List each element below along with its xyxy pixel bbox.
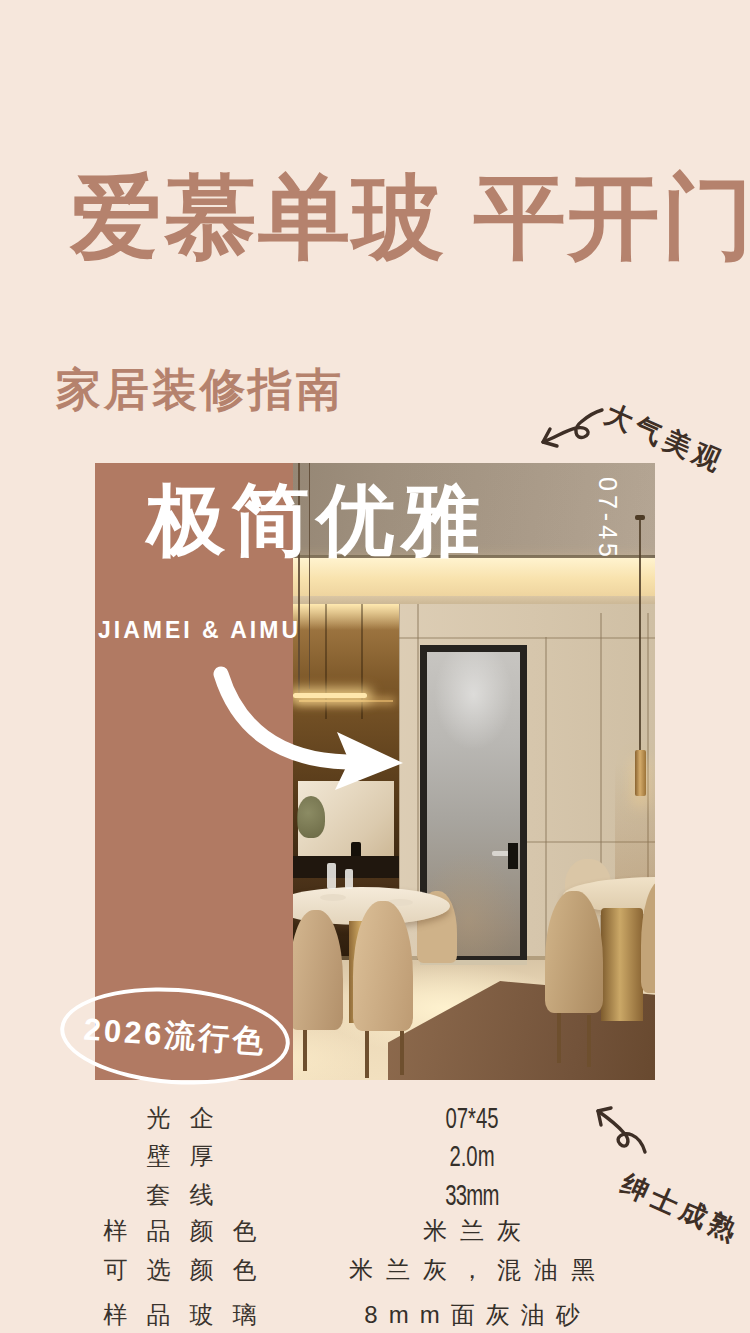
chair-leg <box>557 1011 561 1063</box>
curly-arrow-up-left-icon <box>588 1098 650 1160</box>
brand-name: JIAMEI & AIMU <box>98 617 301 644</box>
trend-color-badge-label: 2026流行色 <box>82 1009 267 1064</box>
table-pedestal <box>601 908 643 1021</box>
curly-arrow-down-left-icon <box>534 400 606 458</box>
page-title: 爱慕单玻 平开门 <box>70 156 750 280</box>
dining-chair <box>289 910 343 1030</box>
dining-chair <box>353 901 413 1031</box>
poster-page: { "colors": { "background": "#f6e7dc", "… <box>0 0 750 1333</box>
spec-row: 样品玻璃 8mm面灰油砂 <box>0 1300 750 1330</box>
wall-seam <box>545 637 547 960</box>
glassware <box>345 869 353 889</box>
spec-value: 2.0m <box>346 1141 598 1171</box>
curved-arrow-right-icon <box>207 666 407 794</box>
spec-label: 壁厚 <box>55 1141 305 1171</box>
spec-row: 可选颜色 米兰灰，混油黑 <box>0 1255 750 1285</box>
plant <box>297 796 325 838</box>
plate <box>320 894 346 901</box>
spec-value: 33mm <box>346 1180 598 1210</box>
page-subtitle: 家居装修指南 <box>56 360 344 420</box>
spec-label: 可选颜色 <box>55 1255 305 1285</box>
card-headline: 极简优雅 <box>147 469 487 574</box>
dining-chair <box>545 891 603 1013</box>
spec-label: 样品玻璃 <box>55 1300 305 1330</box>
pendant-light <box>635 750 646 796</box>
spec-label: 样品颜色 <box>55 1216 305 1246</box>
chair-leg <box>303 1023 307 1071</box>
door-lock <box>508 843 518 869</box>
spec-value: 07*45 <box>346 1103 598 1133</box>
glassware <box>327 863 336 889</box>
chair-leg <box>400 1025 404 1075</box>
spec-value: 米兰灰，混油黑 <box>292 1255 652 1285</box>
spec-value: 8mm面灰油砂 <box>292 1300 652 1330</box>
wall-seam <box>398 637 655 639</box>
spec-label: 套线 <box>55 1180 305 1210</box>
chair-leg <box>587 1015 591 1067</box>
pendant-cable <box>639 518 641 750</box>
spec-value: 米兰灰 <box>292 1216 652 1246</box>
spec-label: 光企 <box>55 1103 305 1133</box>
chair-leg <box>365 1028 369 1078</box>
model-code: 07-45 <box>593 477 622 561</box>
spec-row: 样品颜色 米兰灰 <box>0 1216 750 1246</box>
